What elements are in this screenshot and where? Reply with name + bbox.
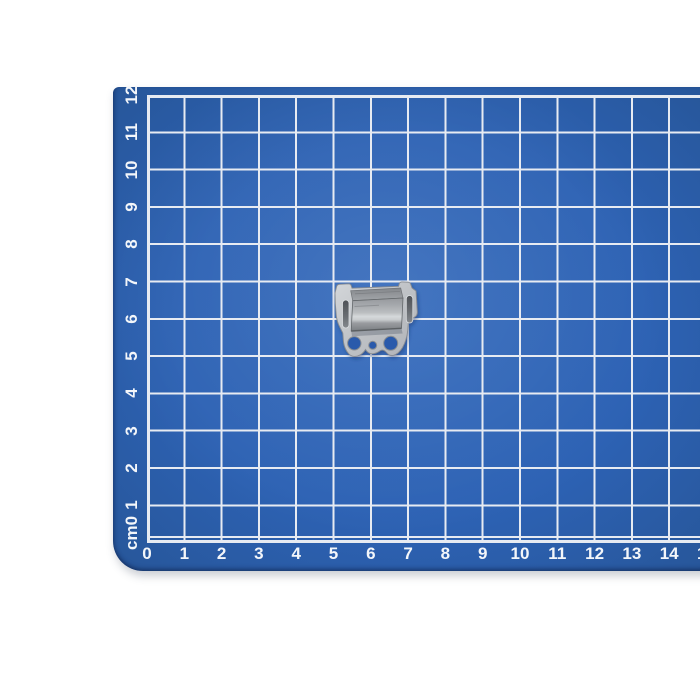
clip-hole-right	[384, 336, 398, 350]
clip-box-front	[351, 298, 403, 331]
y-axis-label: 6	[123, 304, 141, 334]
clip-hole-left	[348, 337, 361, 350]
x-axis-label: 15	[692, 545, 700, 563]
x-axis-label: 9	[468, 545, 498, 563]
y-axis-label: cm0	[123, 520, 141, 550]
x-axis-label: 14	[654, 545, 684, 563]
clip-hole-center	[369, 341, 377, 349]
x-axis-label: 4	[281, 545, 311, 563]
y-axis-label: 12	[123, 80, 141, 110]
y-axis-label: 3	[123, 416, 141, 446]
y-axis-label: 5	[123, 341, 141, 371]
x-axis-label: 11	[542, 545, 572, 563]
x-axis-label: 13	[617, 545, 647, 563]
clip-slot-left	[343, 300, 350, 328]
y-axis-label: 10	[123, 155, 141, 185]
x-axis-label: 12	[580, 545, 610, 563]
y-axis-label: 9	[123, 192, 141, 222]
clip-slot-right	[406, 296, 413, 324]
y-axis-label: 8	[123, 229, 141, 259]
product-photo: 0123456789101112131415 121110987654321cm…	[0, 0, 700, 700]
x-axis-label: 6	[356, 545, 386, 563]
x-axis-label: 3	[244, 545, 274, 563]
x-axis-label: 2	[207, 545, 237, 563]
x-axis-label: 7	[393, 545, 423, 563]
x-axis-label: 8	[430, 545, 460, 563]
y-axis-label: 11	[123, 117, 141, 147]
x-axis-label: 10	[505, 545, 535, 563]
y-axis-label: 2	[123, 453, 141, 483]
x-axis-label: 5	[319, 545, 349, 563]
metal-clip	[330, 278, 430, 368]
x-axis-label: 1	[169, 545, 199, 563]
cutting-mat: 0123456789101112131415 121110987654321cm…	[113, 87, 700, 571]
y-axis-label: 4	[123, 378, 141, 408]
y-axis-label: 7	[123, 267, 141, 297]
